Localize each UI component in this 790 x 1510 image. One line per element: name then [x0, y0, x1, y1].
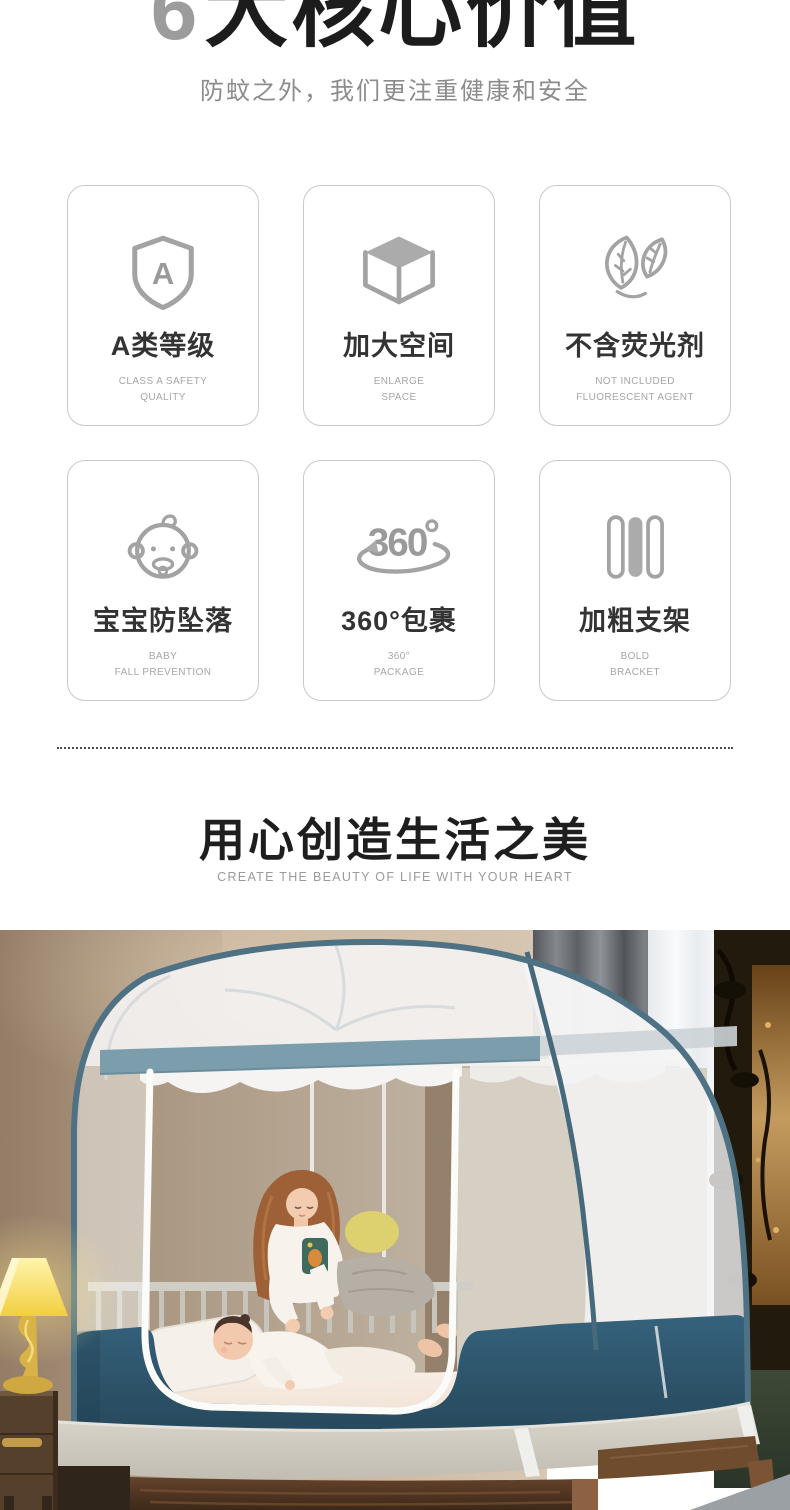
feature-caption-line: NOT INCLUDED — [576, 374, 694, 390]
feature-caption-line: SPACE — [374, 390, 425, 406]
product-photo-mosquito-net — [0, 930, 790, 1510]
feature-card-space: 加大空间 ENLARGE SPACE — [303, 185, 495, 426]
feature-card-360-wrap: 360 360°包裹 360° PACKAGE — [303, 460, 495, 701]
yellow-pillow — [345, 1211, 399, 1253]
feature-caption: 360° PACKAGE — [374, 649, 424, 680]
craft-section-title: 用心创造生活之美 — [0, 804, 790, 870]
mother-hand — [286, 1319, 300, 1333]
craft-section-subtitle: CREATE THE BEAUTY OF LIFE WITH YOUR HEAR… — [0, 870, 790, 884]
hero-title-text: 大核心价值 — [204, 0, 639, 57]
feature-caption-line: FALL PREVENTION — [115, 665, 212, 681]
feature-card-thick-bracket: 加粗支架 BOLD BRACKET — [539, 460, 731, 701]
svg-text:360: 360 — [368, 522, 427, 565]
feature-card-class-a: A A类等级 CLASS A SAFETY QUALITY — [67, 185, 259, 426]
feature-caption: ENLARGE SPACE — [374, 374, 425, 405]
feature-card-baby-safe: 宝宝防坠落 BABY FALL PREVENTION — [67, 460, 259, 701]
feature-title: 加大空间 — [343, 324, 455, 363]
feature-caption: BOLD BRACKET — [610, 649, 660, 680]
feature-caption-line: BRACKET — [610, 665, 660, 681]
feature-title: 不含荧光剂 — [565, 324, 705, 363]
feature-title: 360°包裹 — [341, 599, 457, 638]
nightstand — [0, 1391, 58, 1510]
feature-title: A类等级 — [111, 324, 216, 363]
feature-caption-line: BOLD — [610, 649, 660, 665]
feature-caption: BABY FALL PREVENTION — [115, 649, 212, 680]
rotate-360-icon: 360 — [341, 501, 457, 593]
feature-caption-line: QUALITY — [119, 390, 207, 406]
product-detail-page: 6大核心价值 防蚊之外，我们更注重健康和安全 A A类等级 CLASS A SA… — [0, 0, 790, 1510]
feature-caption-line: FLUORESCENT AGENT — [576, 390, 694, 406]
cube-icon — [357, 226, 441, 318]
leaves-icon — [593, 226, 677, 318]
baby-icon — [120, 501, 206, 593]
feature-title: 宝宝防坠落 — [93, 599, 233, 638]
under-bed-shadow — [56, 1466, 130, 1510]
drawer-handle — [2, 1438, 42, 1447]
hero-title: 6大核心价值 — [0, 0, 790, 52]
feature-caption-line: BABY — [115, 649, 212, 665]
feature-caption-line: PACKAGE — [374, 665, 424, 681]
svg-text:A: A — [152, 256, 174, 291]
feature-caption-line: ENLARGE — [374, 374, 425, 390]
feature-title: 加粗支架 — [579, 599, 691, 638]
feature-caption: CLASS A SAFETY QUALITY — [119, 374, 207, 405]
bars-icon — [593, 501, 677, 593]
feature-caption: NOT INCLUDED FLUORESCENT AGENT — [576, 374, 694, 405]
hero-title-number: 6 — [151, 0, 201, 57]
dotted-divider — [57, 747, 733, 749]
hero-subtitle: 防蚊之外，我们更注重健康和安全 — [0, 71, 790, 106]
feature-card-no-fluorescent: 不含荧光剂 NOT INCLUDED FLUORESCENT AGENT — [539, 185, 731, 426]
feature-caption-line: 360° — [374, 649, 424, 665]
shield-a-icon: A — [122, 226, 204, 318]
feature-caption-line: CLASS A SAFETY — [119, 374, 207, 390]
